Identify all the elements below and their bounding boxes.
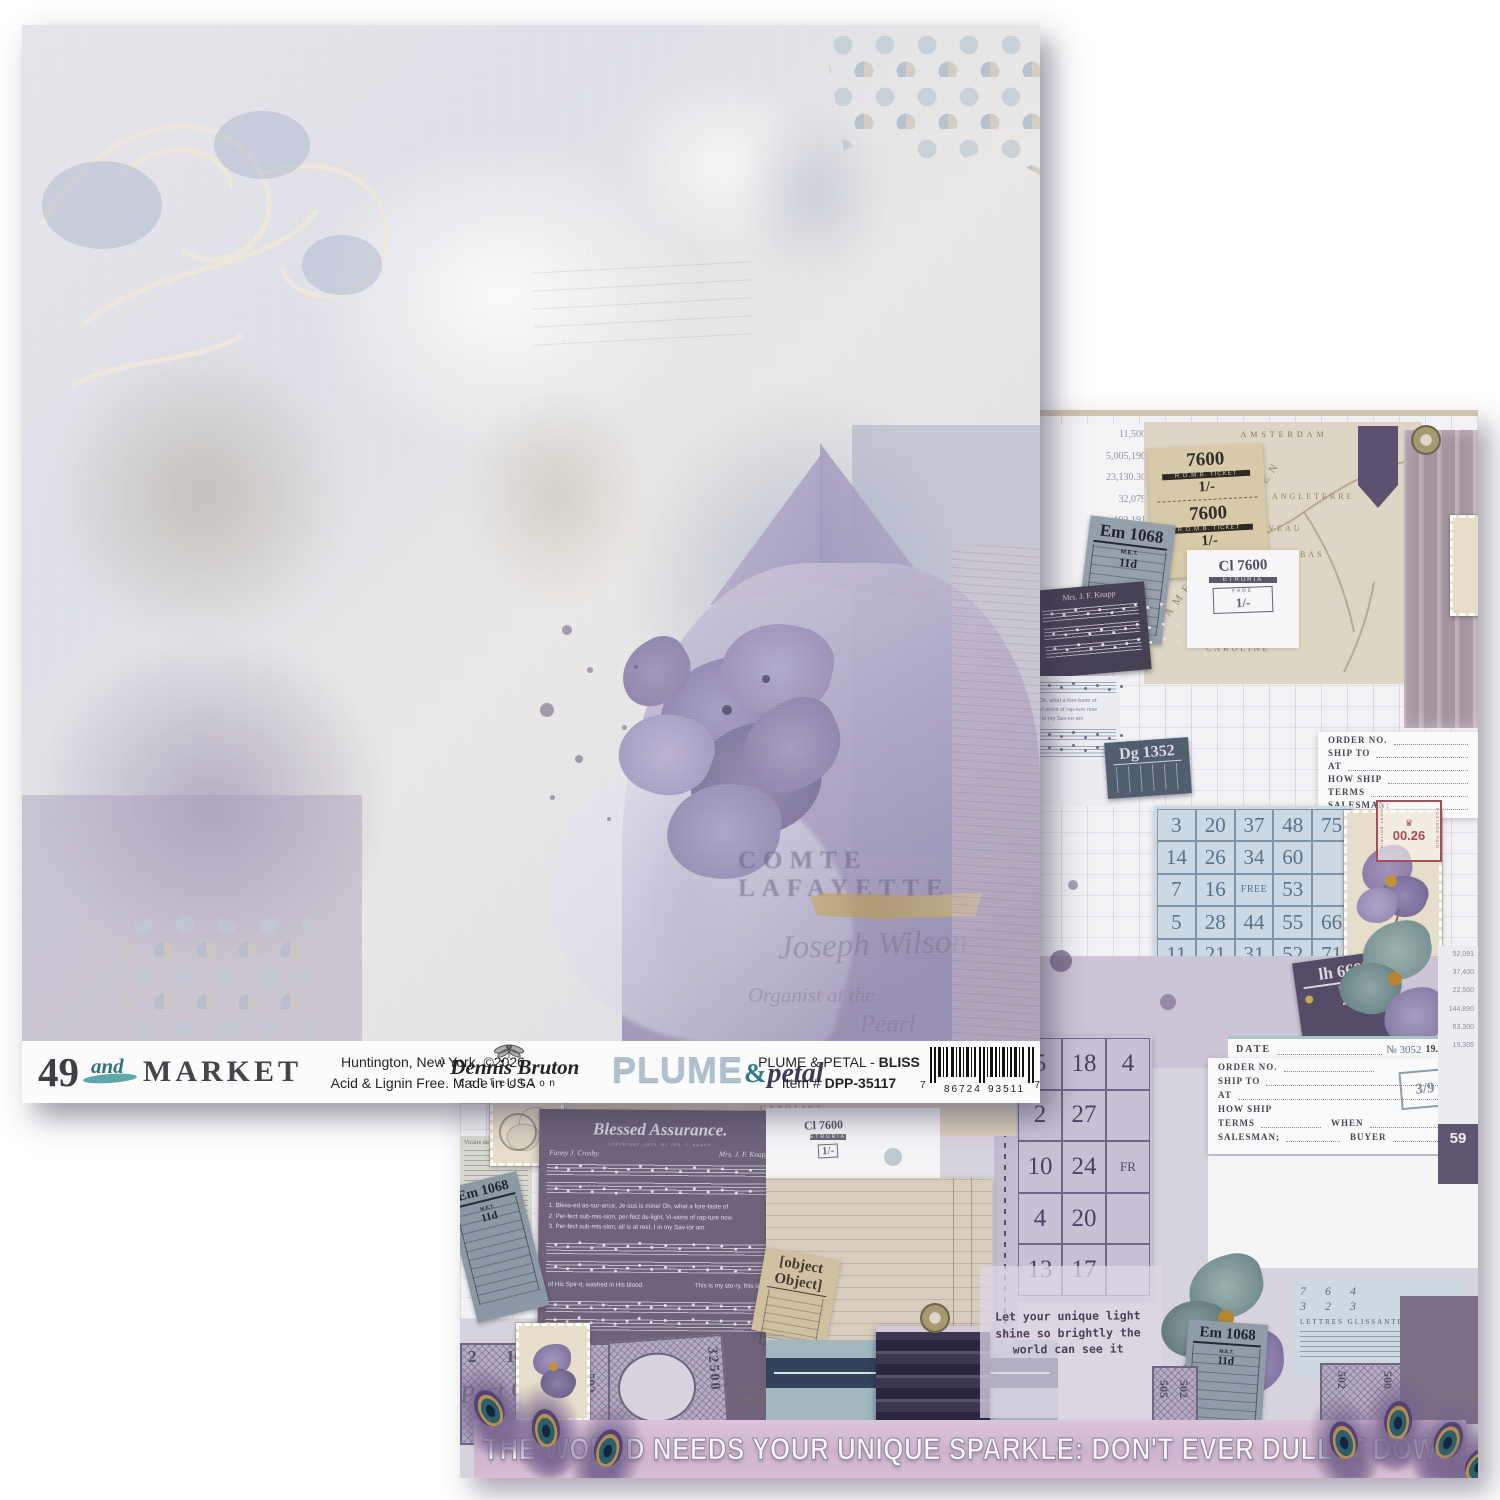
bingo-cell bbox=[1106, 1090, 1150, 1142]
hymn-credit-right: Mrs. J. F. Knapp. bbox=[719, 1150, 771, 1159]
bingo-cell: 60 bbox=[1273, 841, 1312, 873]
orchid-center bbox=[1385, 875, 1397, 887]
stamp-cl7600: Cl 7600 bbox=[1187, 556, 1300, 577]
barcode-digits: 93511 bbox=[988, 1084, 1025, 1095]
product-name: BLISS bbox=[879, 1054, 920, 1070]
hymn-lyric: Oh, what a fore-taste of bbox=[1039, 697, 1117, 706]
banknote-strip-number: 502 bbox=[1334, 1371, 1349, 1389]
product-info-block: PLUME & PETAL - BLISS Item # DPP-35117 bbox=[744, 1052, 934, 1094]
music-notes bbox=[1052, 632, 1055, 635]
fare-value: 1/- bbox=[1236, 595, 1251, 610]
receipt-head: Cl 7600 ETRURIA FARE 1/- bbox=[1187, 550, 1299, 648]
fare-stamp-value: 3/9 bbox=[1415, 1080, 1436, 1099]
pad-rule-red bbox=[953, 1178, 954, 1348]
ledger-numbers-right: 52,091 37,400 22,500 144,890 63,300 19,3… bbox=[1438, 946, 1478, 1128]
postage-stamp-edge bbox=[1450, 515, 1478, 616]
bingo-cell: 5 bbox=[1157, 906, 1196, 938]
buyer-label: BUYER bbox=[1350, 1132, 1387, 1142]
bingo-cell: 20 bbox=[1062, 1193, 1106, 1245]
music-notes bbox=[1050, 612, 1053, 615]
receipt-number: № 3052 bbox=[1386, 1044, 1421, 1056]
bingo-card-blue: 320374875 14263460 716FREE53 528445566 1… bbox=[1154, 806, 1354, 974]
pad-rule-red bbox=[971, 1178, 972, 1348]
order-blank-line bbox=[1284, 1061, 1374, 1072]
order-field-label: HOW SHIP bbox=[1218, 1104, 1272, 1114]
ticket-fare: 11d bbox=[480, 1209, 499, 1225]
bingo-cell: 26 bbox=[1196, 841, 1235, 873]
brand-logo-49-and-market: 49 and MARKET bbox=[38, 1047, 302, 1097]
bingo-cell: 18 bbox=[1062, 1038, 1106, 1090]
order-field-label: HOW SHIP bbox=[1328, 774, 1382, 784]
bingo-cell: 28 bbox=[1196, 906, 1235, 938]
barcode-digit: 7 bbox=[1034, 1080, 1040, 1091]
branding-strip: 49 and MARKET bbox=[22, 1041, 1040, 1103]
order-blank-line bbox=[1394, 734, 1468, 745]
banknote-strip-number: 502 bbox=[1176, 1380, 1191, 1398]
item-label: Item # bbox=[782, 1075, 821, 1091]
ledger-value: 52,091 bbox=[1438, 946, 1474, 964]
bingo-cell: 37 bbox=[1235, 809, 1274, 841]
music-notes bbox=[554, 1303, 557, 1306]
ledger-value: 5,005,190 bbox=[1038, 446, 1146, 468]
order-field-label: ORDER NO. bbox=[1328, 735, 1388, 745]
banknote-strip-number: 505 bbox=[1156, 1380, 1171, 1398]
banknote-value: 32500 bbox=[703, 1346, 722, 1392]
quote-line: shine so brightly the bbox=[988, 1324, 1148, 1342]
music-card-knapp: Mrs. J. F. Knapp bbox=[1032, 581, 1151, 678]
barcode-digit: 7 bbox=[920, 1080, 926, 1091]
logo-market: MARKET bbox=[143, 1055, 302, 1089]
bingo-cell: FR bbox=[1106, 1141, 1150, 1193]
transit-ticket-dg1352: Dg 1352 bbox=[1104, 737, 1192, 799]
music-notes bbox=[555, 1166, 558, 1169]
stamp-fare-box: FARE 1/- bbox=[1213, 586, 1274, 614]
order-blank-line bbox=[1388, 773, 1468, 784]
order-blank-line bbox=[1348, 760, 1468, 771]
stamp-cl7600: Cl 7600 bbox=[804, 1117, 843, 1133]
hymn-verse: 3. Per-fect sub-mis-sion, all is at rest… bbox=[548, 1222, 770, 1235]
order-blank-line bbox=[1286, 1131, 1340, 1142]
bingo-cell bbox=[1106, 1193, 1150, 1245]
ticket-code: Em 1068 bbox=[1193, 1324, 1262, 1348]
quote-block: Let your unique light shine so brightly … bbox=[988, 1307, 1148, 1358]
order-blank-line bbox=[1261, 1117, 1321, 1128]
logo-and-wrap: and bbox=[83, 1054, 139, 1090]
map-city-label: AMSTERDAM bbox=[1184, 430, 1384, 439]
ledger-value: 63,300 bbox=[1438, 1019, 1474, 1037]
music-notes bbox=[555, 1187, 558, 1190]
logo-plume: PLUME bbox=[612, 1049, 743, 1091]
order-blank-line bbox=[1376, 747, 1468, 758]
order-field-label: ORDER NO. bbox=[1218, 1062, 1278, 1072]
page-number-block: 59 bbox=[1438, 1124, 1478, 1184]
quote-line: world can see it bbox=[988, 1341, 1148, 1359]
orchid-center bbox=[1388, 972, 1402, 986]
order-field-label: SHIP TO bbox=[1218, 1076, 1260, 1086]
hymn-credit-left: Fanny J. Crosby. bbox=[549, 1148, 600, 1157]
hymn-lyric: I in my Sav-ior am bbox=[1039, 715, 1117, 724]
music-notes bbox=[554, 1265, 557, 1268]
bingo-cell: 4 bbox=[1018, 1193, 1062, 1245]
product-series: PLUME & PETAL - bbox=[758, 1054, 875, 1070]
ledger-value: 37,400 bbox=[1438, 964, 1474, 982]
bingo-cell: 14 bbox=[1157, 841, 1196, 873]
front-sheet: COMTE LAFAYETTE Joseph Wilson Organist a… bbox=[22, 25, 1040, 1103]
scrapbook-paper-product-shot: 11,500 5,005,190 23,130.30 32,079 192,19… bbox=[0, 0, 1500, 1500]
meter-country: GREAT BRITAIN bbox=[1379, 806, 1383, 849]
address-line: Acid & Lignin Free. Made in USA bbox=[328, 1073, 538, 1094]
bingo-cell: 3 bbox=[1157, 809, 1196, 841]
ledger-value: 23,130.30 bbox=[1038, 467, 1146, 489]
quote-line: Let your unique light bbox=[988, 1307, 1148, 1325]
when-label: WHEN bbox=[1331, 1118, 1364, 1128]
date-blank-line bbox=[1277, 1044, 1382, 1055]
ledger-value: 19,305 bbox=[1438, 1037, 1474, 1055]
year-label: 19. bbox=[1426, 1044, 1439, 1055]
date-label: DATE bbox=[1236, 1044, 1271, 1055]
bingo-cell: 27 bbox=[1062, 1090, 1106, 1142]
stamp-etruria: ETRURIA bbox=[810, 1134, 846, 1140]
ledger-value: 32,079 bbox=[1038, 489, 1146, 511]
hymn-chorus: of His Spir-it, washed in His blood. bbox=[548, 1280, 644, 1292]
barcode-digits: 86724 bbox=[944, 1084, 982, 1095]
ledger-value: 144,890 bbox=[1438, 1001, 1474, 1019]
front-artwork: COMTE LAFAYETTE Joseph Wilson Organist a… bbox=[22, 25, 1040, 1041]
ink-blot bbox=[1050, 950, 1072, 972]
bingo-cell: 44 bbox=[1235, 906, 1274, 938]
order-field-label: AT bbox=[1328, 761, 1342, 771]
music-notes bbox=[1048, 684, 1051, 687]
ticket-1352-tan: [object Object] bbox=[751, 1247, 840, 1343]
barcode: 7 86724 93511 7 bbox=[924, 1047, 1036, 1097]
ledger-value: 22,500 bbox=[1438, 982, 1474, 1000]
fare-value: 1/- bbox=[818, 1143, 839, 1158]
logo-49: 49 bbox=[38, 1048, 79, 1096]
grommet bbox=[1411, 425, 1441, 455]
bingo-cell: 20 bbox=[1196, 809, 1235, 841]
ticket-code: Dg 1352 bbox=[1112, 742, 1181, 766]
bingo-cell: 24 bbox=[1062, 1141, 1106, 1193]
music-notes bbox=[1048, 746, 1051, 749]
barcode-bars bbox=[930, 1047, 1034, 1083]
music-notes bbox=[1048, 733, 1051, 736]
order-blank-line bbox=[1371, 786, 1468, 797]
address-line: Huntington, New York. ©2026 bbox=[328, 1052, 538, 1073]
fare-label: FARE bbox=[1214, 587, 1272, 595]
logo-and: and bbox=[91, 1054, 124, 1079]
bingo-cell: 48 bbox=[1273, 809, 1312, 841]
music-notes bbox=[554, 1243, 557, 1246]
order-field-label: SHIP TO bbox=[1328, 748, 1370, 758]
grommet bbox=[920, 1303, 950, 1333]
item-number: DPP-35117 bbox=[825, 1075, 897, 1091]
bingo-cell: 53 bbox=[1273, 874, 1312, 906]
bingo-cell: 55 bbox=[1273, 906, 1312, 938]
postmark-ring bbox=[499, 1113, 537, 1151]
orchid-center bbox=[549, 1362, 558, 1371]
page-number: 59 bbox=[1450, 1130, 1467, 1147]
ink-blot bbox=[1068, 880, 1078, 890]
bingo-cell: FREE bbox=[1235, 874, 1274, 906]
order-field-label: TERMS bbox=[1218, 1118, 1255, 1128]
bingo-cell: 16 bbox=[1196, 874, 1235, 906]
order-field-label: SALESMAN; bbox=[1218, 1132, 1280, 1142]
ink-blot bbox=[1160, 994, 1176, 1010]
meter-value: 00.26 bbox=[1393, 829, 1426, 843]
order-field-label: AT bbox=[1218, 1090, 1232, 1100]
ink-blot bbox=[884, 1148, 902, 1166]
bingo-cell: 10 bbox=[1018, 1141, 1062, 1193]
bingo-cell: 7 bbox=[1157, 874, 1196, 906]
postage-meter-stamp: ♛ 00.26 GREAT BRITAIN POSTAGE PAID bbox=[1376, 800, 1442, 862]
ledger-value: 11,500 bbox=[1038, 424, 1146, 446]
order-field-label: TERMS bbox=[1328, 787, 1365, 797]
orchid-petal bbox=[1355, 884, 1400, 925]
map-label: ANGLETERRE bbox=[1272, 492, 1354, 501]
meter-paid: POSTAGE PAID bbox=[1435, 808, 1439, 849]
bingo-cell: 4 bbox=[1106, 1038, 1150, 1090]
bingo-cell: 34 bbox=[1235, 841, 1274, 873]
address-block: Huntington, New York. ©2026 Acid & Ligni… bbox=[328, 1052, 538, 1094]
stamp-etruria: ETRURIA bbox=[1209, 577, 1277, 583]
canvas-texture bbox=[22, 25, 1040, 1041]
hymn-lyric: Vi-sions of rap-ture now bbox=[1039, 706, 1117, 715]
ticket-fare: 11d bbox=[1217, 1354, 1234, 1367]
hymn-title: Blessed Assurance. bbox=[539, 1109, 781, 1141]
music-notes bbox=[554, 1318, 557, 1321]
music-notes bbox=[1053, 647, 1056, 650]
ticket-fare: 11d bbox=[1118, 555, 1138, 572]
